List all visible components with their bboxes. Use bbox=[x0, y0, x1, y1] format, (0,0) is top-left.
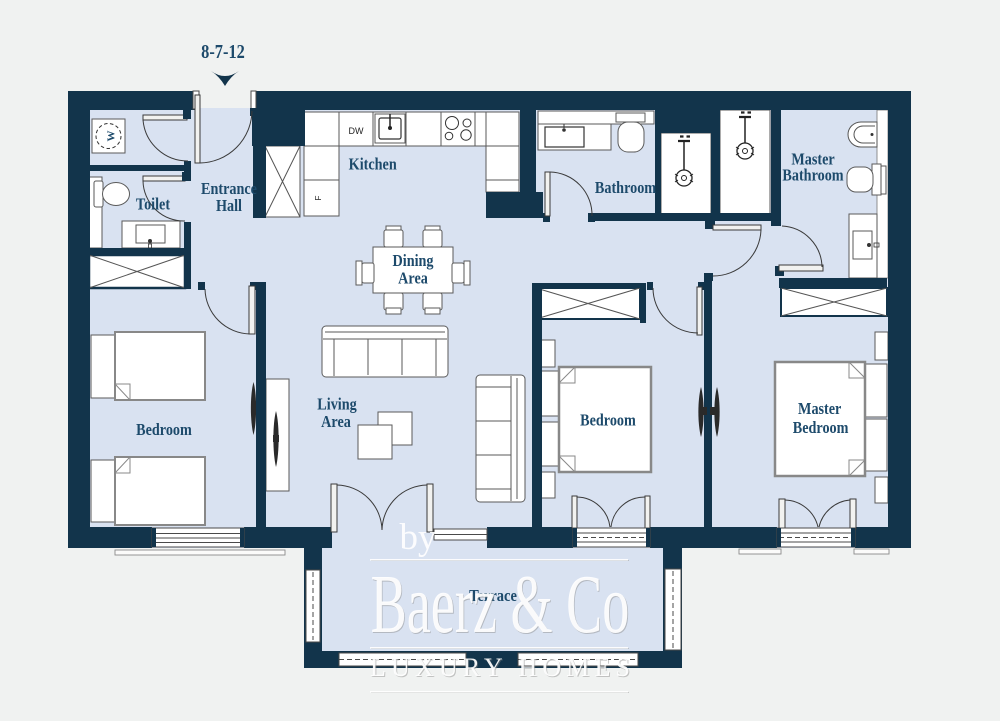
svg-text:by: by bbox=[400, 517, 438, 558]
svg-text:Hall: Hall bbox=[216, 197, 243, 215]
svg-text:Bedroom: Bedroom bbox=[136, 421, 192, 439]
svg-text:Baerz & Co: Baerz & Co bbox=[371, 558, 630, 651]
svg-text:Area: Area bbox=[398, 270, 428, 288]
svg-text:Living: Living bbox=[317, 396, 357, 414]
svg-text:Area: Area bbox=[321, 413, 351, 431]
svg-text:DW: DW bbox=[349, 126, 364, 136]
svg-text:Bathroom: Bathroom bbox=[782, 167, 843, 185]
svg-text:Kitchen: Kitchen bbox=[349, 155, 397, 173]
svg-text:W: W bbox=[106, 131, 118, 142]
svg-text:Bedroom: Bedroom bbox=[793, 419, 849, 437]
svg-text:Bathroom: Bathroom bbox=[595, 179, 656, 197]
svg-text:Entrance: Entrance bbox=[201, 180, 257, 198]
svg-text:Master: Master bbox=[798, 400, 841, 418]
svg-text:8-7-12: 8-7-12 bbox=[201, 41, 245, 63]
svg-text:F: F bbox=[314, 195, 323, 200]
svg-text:Dining: Dining bbox=[393, 252, 434, 270]
svg-text:Toilet: Toilet bbox=[136, 196, 171, 214]
svg-text:Bedroom: Bedroom bbox=[580, 412, 636, 430]
